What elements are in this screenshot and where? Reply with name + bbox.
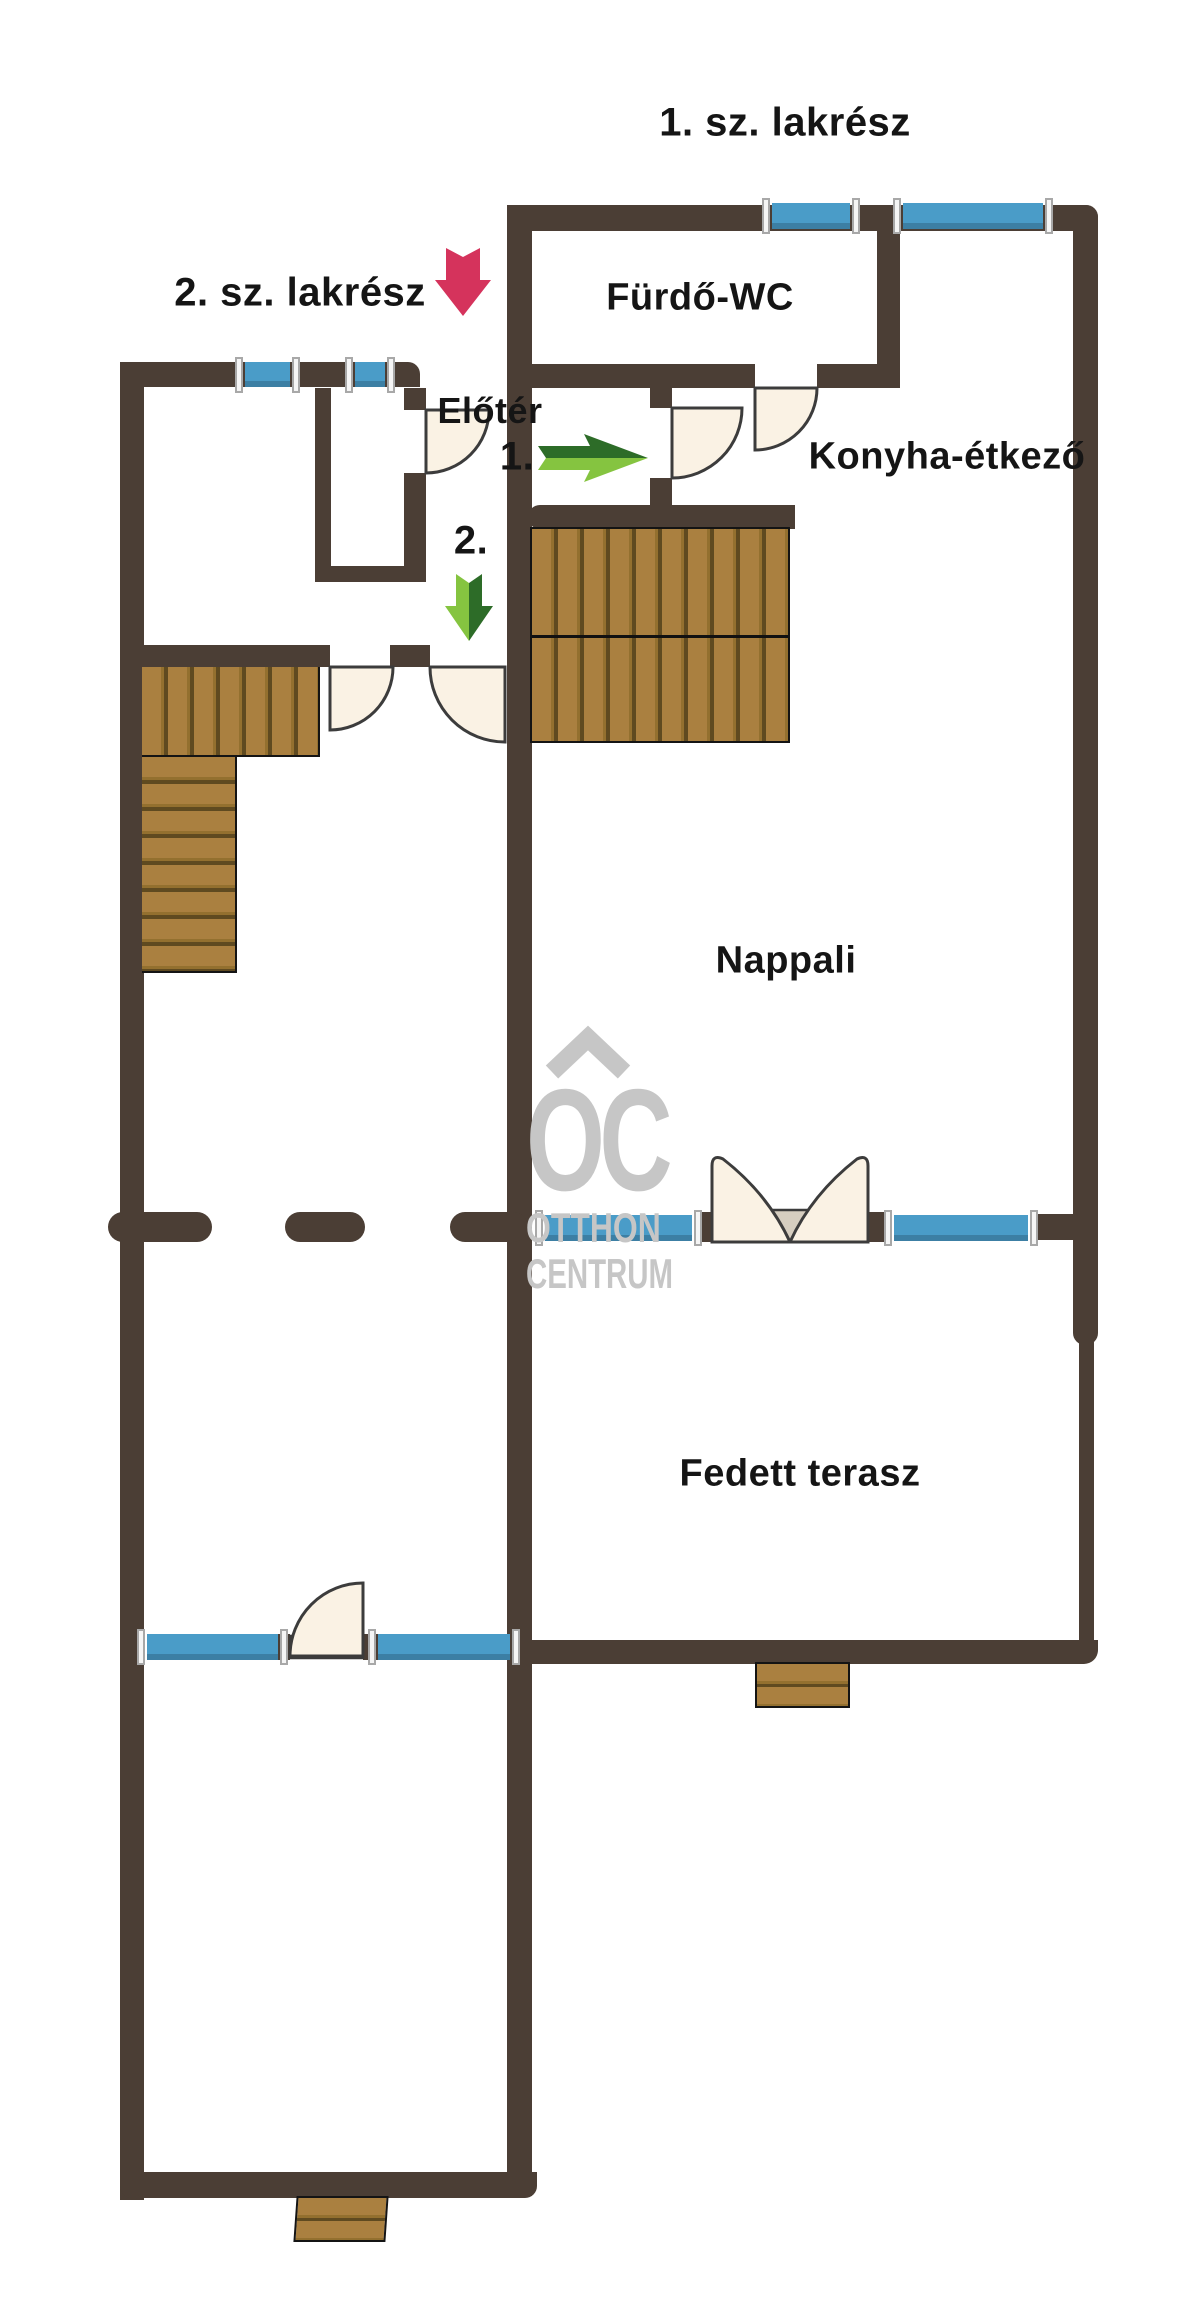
doors-and-arrows-layer — [0, 0, 1180, 2320]
green-right-arrow-icon — [538, 434, 648, 482]
marker-entrance-2: 2. — [454, 519, 488, 564]
green-down-arrow-icon — [445, 574, 493, 641]
watermark-roof-icon — [552, 1038, 624, 1072]
door-hall-to-kitchen — [672, 408, 742, 478]
floor-plan: OC OTTHON CENTRUM — [0, 0, 1180, 2320]
door-bottom-room — [290, 1583, 363, 1656]
french-door-left-leaf — [712, 1158, 790, 1242]
french-door-right-leaf — [790, 1158, 868, 1242]
room-label-kitchen: Konyha-étkező — [809, 436, 1086, 479]
marker-entrance-1: 1. — [500, 435, 534, 480]
section-title-unit1: 1. sz. lakrész — [659, 101, 911, 146]
section-title-unit2: 2. sz. lakrész — [174, 271, 426, 316]
room-label-bathroom: Fürdő-WC — [606, 277, 794, 320]
door-stairhall-right — [430, 667, 505, 742]
pink-down-arrow-icon — [435, 248, 491, 316]
door-stairhall-left — [330, 667, 393, 730]
room-label-living: Nappali — [716, 940, 857, 983]
room-label-terrace: Fedett terasz — [680, 1453, 921, 1496]
room-label-hall: Előtér — [437, 390, 542, 432]
